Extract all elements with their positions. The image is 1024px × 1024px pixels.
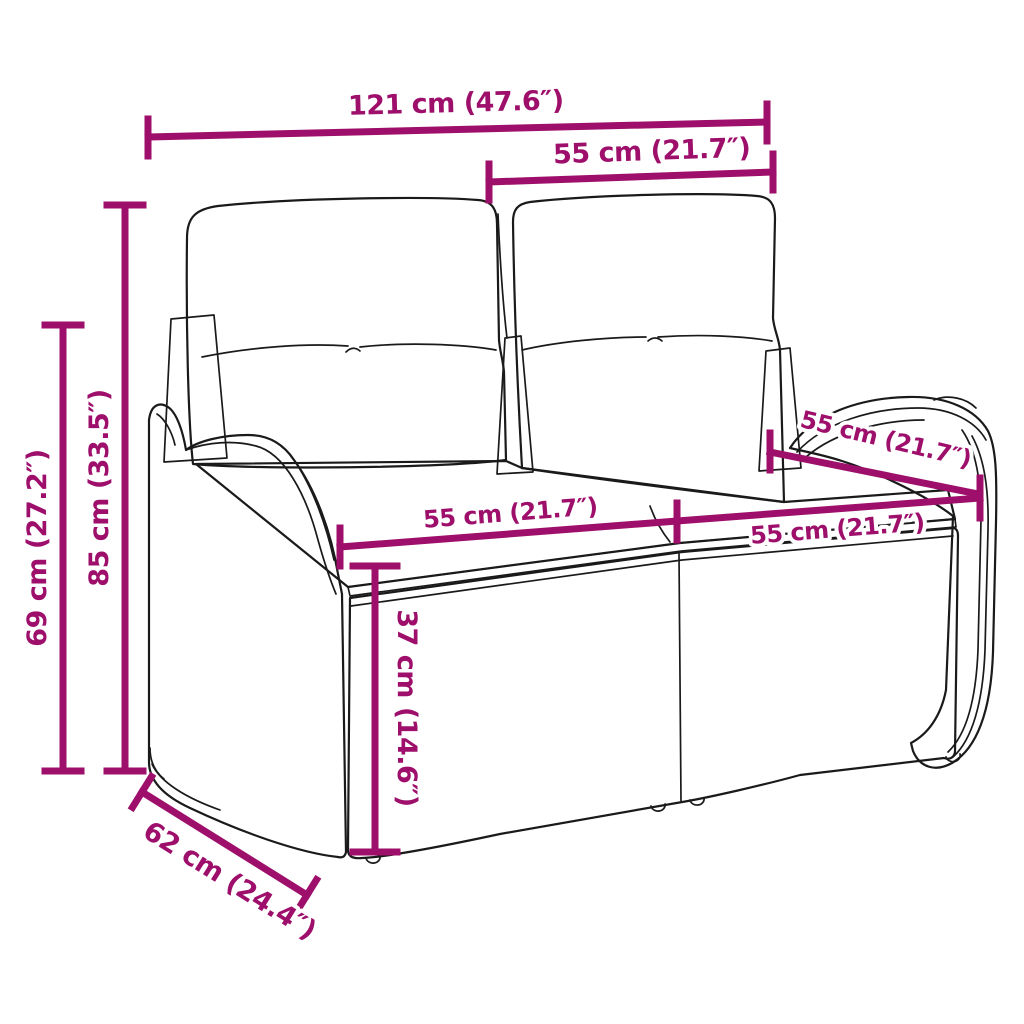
- left-armrest: [149, 405, 346, 858]
- back-cushion-left: [187, 198, 506, 467]
- total-height-label: 85 cm (33.5″): [84, 389, 115, 586]
- dimension-total-height: 85 cm (33.5″): [84, 205, 143, 771]
- seat-height-label: 37 cm (14.6″): [391, 609, 422, 806]
- backrest-width-label: 55 cm (21.7″): [553, 133, 751, 171]
- dimension-base-depth: 62 cm (24.4″): [133, 777, 322, 947]
- product-dimension-diagram: 121 cm (47.6″) 55 cm (21.7″) 85 cm (33.5…: [0, 0, 1024, 1024]
- dimension-backrest-width: 55 cm (21.7″): [489, 133, 773, 200]
- backrest-frame-posts: [164, 315, 801, 474]
- base-module-divider: [679, 554, 681, 802]
- bench-dimension-figure: 121 cm (47.6″) 55 cm (21.7″) 85 cm (33.5…: [0, 0, 1024, 1024]
- dimension-armrest-height: 69 cm (27.2″): [22, 325, 81, 771]
- dimension-seat-height: 37 cm (14.6″): [353, 566, 422, 852]
- total-width-label: 121 cm (47.6″): [348, 85, 564, 122]
- back-cushions: [187, 194, 784, 502]
- back-cushion-right: [513, 194, 784, 502]
- base-depth-label: 62 cm (24.4″): [138, 815, 322, 946]
- base-front-panel: [348, 528, 958, 863]
- dimension-seat-width-left: 55 cm (21.7″): [340, 492, 677, 566]
- armrest-height-label: 69 cm (27.2″): [22, 449, 53, 646]
- left-armrest-roll-lines: [150, 414, 336, 810]
- cushion-creases: [202, 214, 772, 357]
